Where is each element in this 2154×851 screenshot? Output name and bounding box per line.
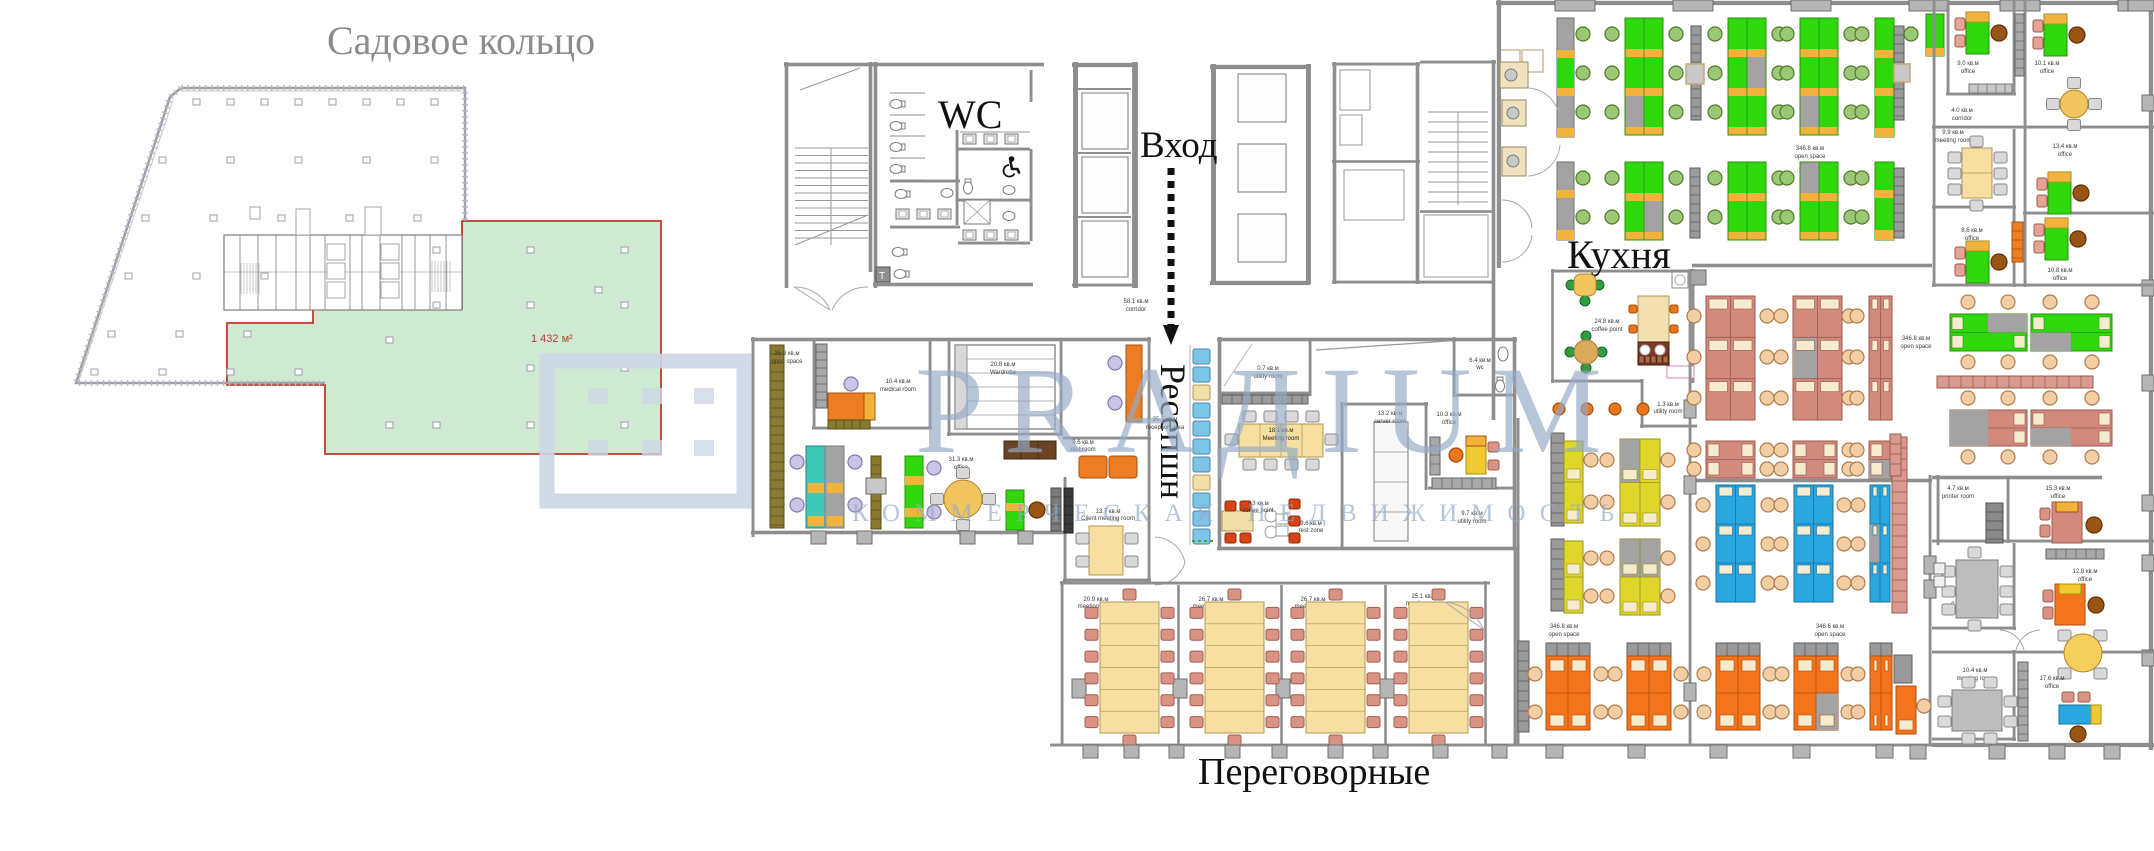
svg-text:58.1 кв.м: 58.1 кв.м — [1124, 299, 1149, 305]
svg-text:1.3 кв.м: 1.3 кв.м — [1657, 402, 1679, 408]
svg-text:346.8 кв.м: 346.8 кв.м — [1796, 146, 1824, 152]
svg-text:346.6 кв.м: 346.6 кв.м — [1816, 624, 1844, 630]
svg-text:8.6 кв.м: 8.6 кв.м — [1961, 228, 1983, 234]
svg-text:35.9 кв.м: 35.9 кв.м — [775, 351, 800, 357]
svg-text:9.9 кв.м: 9.9 кв.м — [1942, 130, 1964, 136]
svg-text:office: office — [2040, 69, 2055, 75]
svg-text:Кухня: Кухня — [1567, 232, 1670, 277]
svg-text:open space: open space — [1814, 632, 1846, 638]
svg-text:corridor: corridor — [1126, 307, 1146, 313]
svg-text:15.3 кв.м: 15.3 кв.м — [2046, 486, 2071, 492]
svg-text:T: T — [879, 271, 885, 282]
svg-text:10.1 кв.м: 10.1 кв.м — [2035, 61, 2060, 67]
svg-text:10.4 кв.м: 10.4 кв.м — [1963, 668, 1988, 674]
svg-text:Вход: Вход — [1140, 125, 1218, 166]
svg-text:1 432 м²: 1 432 м² — [531, 333, 573, 345]
svg-text:Садовое кольцо: Садовое кольцо — [327, 18, 595, 63]
svg-text:medical room: medical room — [880, 387, 916, 393]
svg-text:24.8 кв.м: 24.8 кв.м — [1595, 319, 1620, 325]
svg-text:meeting room: meeting room — [1935, 138, 1972, 144]
svg-text:PRAДIUM: PRAДIUM — [915, 342, 1622, 479]
svg-text:office: office — [2051, 494, 2066, 500]
svg-text:WC: WC — [938, 92, 1002, 137]
svg-text:Переговорные: Переговорные — [1198, 751, 1430, 793]
svg-text:office: office — [1961, 69, 1976, 75]
svg-text:346.8 кв.м: 346.8 кв.м — [1902, 336, 1930, 342]
svg-text:office: office — [2053, 276, 2068, 282]
svg-text:office: office — [2045, 684, 2060, 690]
svg-text:17.6 кв.м: 17.6 кв.м — [2040, 676, 2065, 682]
svg-text:13.4 кв.м: 13.4 кв.м — [2053, 144, 2078, 150]
svg-text:9.0 кв.м: 9.0 кв.м — [1957, 61, 1979, 67]
svg-text:printer room: printer room — [1942, 494, 1974, 500]
svg-text:4.7 кв.м: 4.7 кв.м — [1947, 486, 1969, 492]
svg-text:346.8 кв.м: 346.8 кв.м — [1550, 624, 1578, 630]
svg-text:10.4 кв.м: 10.4 кв.м — [886, 379, 911, 385]
svg-text:coffee point: coffee point — [1592, 327, 1623, 333]
svg-text:office: office — [2078, 577, 2093, 583]
svg-text:corridor: corridor — [1952, 116, 1972, 122]
svg-text:utility room: utility room — [1653, 409, 1682, 415]
svg-text:open space: open space — [1794, 154, 1826, 160]
svg-text:10.8 кв.м: 10.8 кв.м — [2048, 268, 2073, 274]
svg-text:4.0 кв.м: 4.0 кв.м — [1951, 108, 1973, 114]
svg-text:КОММЕРЧЕСКАЯ НЕДВИЖИМОСТЬ: КОММЕРЧЕСКАЯ НЕДВИЖИМОСТЬ — [852, 500, 1628, 527]
svg-text:open space: open space — [1548, 632, 1580, 638]
svg-text:rest zone: rest zone — [1299, 528, 1324, 534]
svg-text:office: office — [2058, 152, 2073, 158]
svg-text:open space: open space — [1900, 344, 1932, 350]
svg-text:12.8 кв.м: 12.8 кв.м — [2073, 569, 2098, 575]
svg-text:open space: open space — [771, 359, 803, 365]
